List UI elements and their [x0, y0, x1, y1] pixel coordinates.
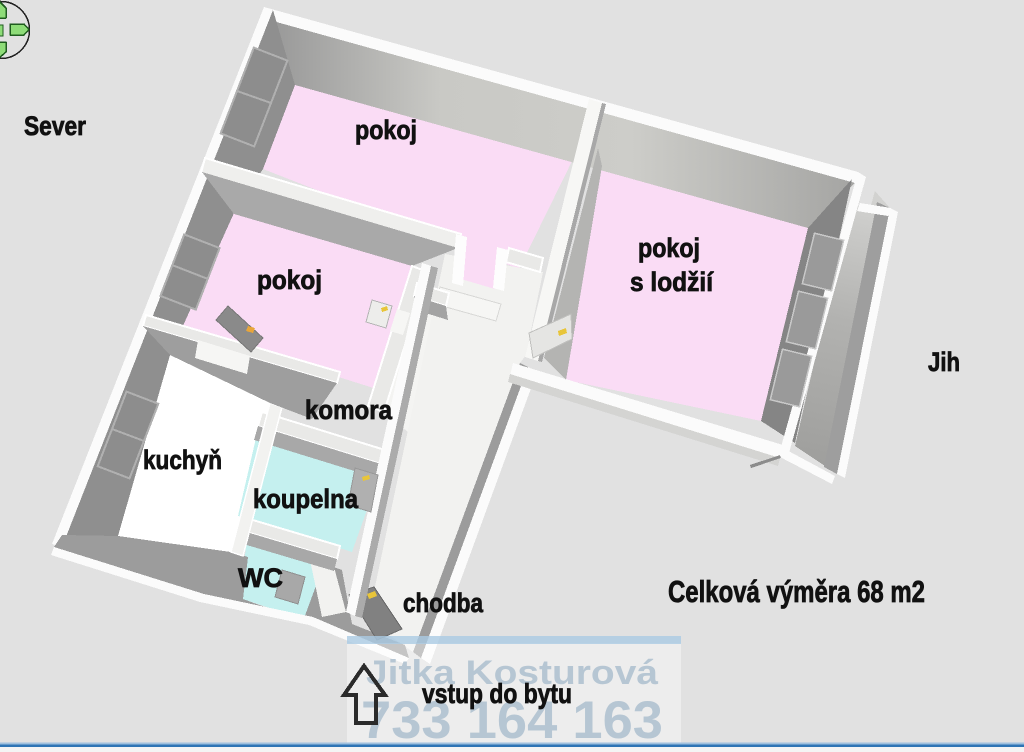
svg-text:s lodžií: s lodžií [630, 267, 714, 297]
svg-text:pokoj: pokoj [638, 233, 700, 263]
svg-text:kuchyň: kuchyň [143, 445, 222, 475]
svg-text:koupelna: koupelna [253, 484, 359, 514]
svg-text:pokoj: pokoj [355, 115, 417, 145]
svg-text:Jih: Jih [928, 347, 960, 377]
svg-text:pokoj: pokoj [257, 265, 322, 295]
svg-text:WC: WC [238, 563, 283, 593]
svg-text:vstup do bytu: vstup do bytu [422, 678, 572, 709]
svg-text:komora: komora [305, 395, 393, 425]
svg-text:chodba: chodba [403, 588, 484, 618]
svg-text:Sever: Sever [24, 111, 86, 141]
svg-text:Celková výměra 68 m2: Celková výměra 68 m2 [668, 574, 925, 609]
